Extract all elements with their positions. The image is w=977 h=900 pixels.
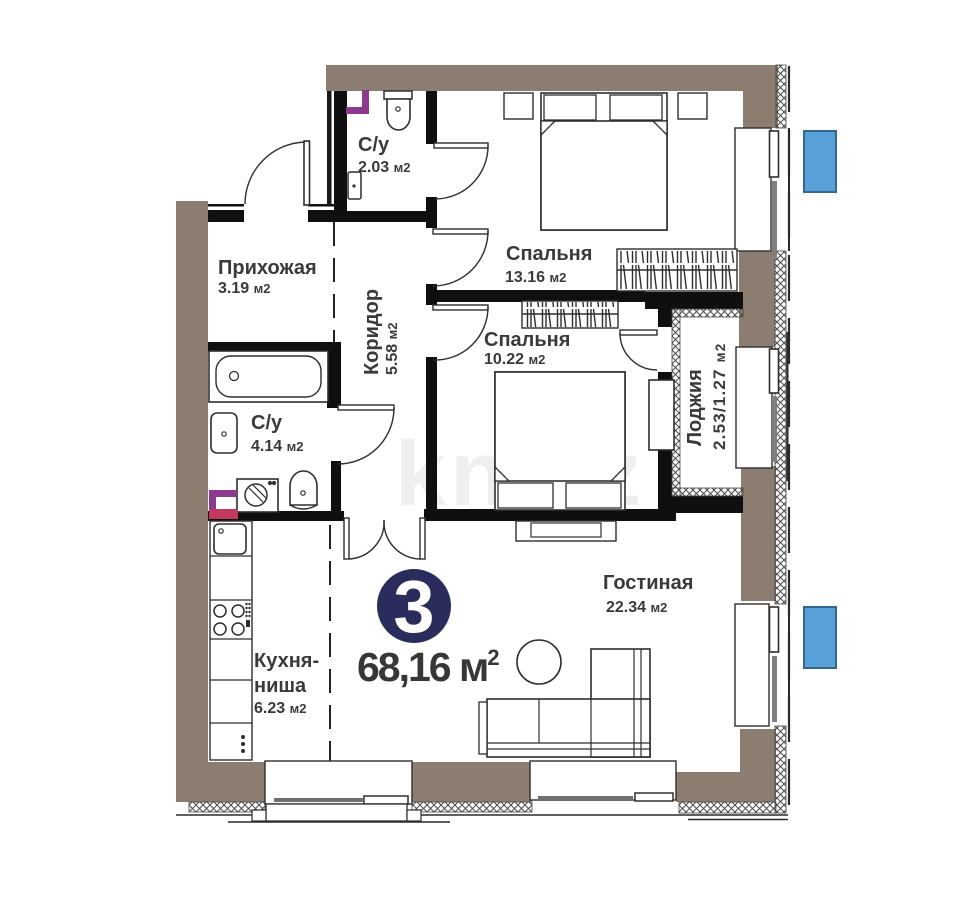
- svg-text:Прихожая: Прихожая: [218, 257, 317, 279]
- svg-text:С/у: С/у: [358, 134, 390, 156]
- svg-text:Гостиная: Гостиная: [603, 572, 693, 594]
- svg-text:10.22 м2: 10.22 м2: [484, 351, 545, 368]
- svg-text:2.03 м2: 2.03 м2: [358, 159, 410, 176]
- svg-text:ниша: ниша: [254, 675, 307, 697]
- svg-text:3: 3: [393, 565, 434, 648]
- svg-text:Кухня-: Кухня-: [254, 650, 319, 672]
- svg-text:22.34 м2: 22.34 м2: [606, 599, 667, 616]
- svg-text:2.53/1.27 м2: 2.53/1.27 м2: [710, 342, 729, 450]
- svg-text:13.16 м2: 13.16 м2: [505, 269, 566, 286]
- svg-text:68,16 м2: 68,16 м2: [357, 644, 500, 690]
- svg-text:4.14 м2: 4.14 м2: [251, 438, 303, 455]
- svg-text:С/у: С/у: [251, 412, 283, 434]
- svg-text:Спальня: Спальня: [484, 329, 570, 351]
- svg-text:Лоджия: Лоджия: [684, 369, 706, 446]
- svg-text:Коридор: Коридор: [361, 289, 383, 375]
- svg-text:6.23 м2: 6.23 м2: [254, 700, 306, 717]
- svg-text:3.19 м2: 3.19 м2: [218, 280, 270, 297]
- svg-text:5.58 м2: 5.58 м2: [384, 323, 401, 375]
- svg-text:Спальня: Спальня: [506, 243, 592, 265]
